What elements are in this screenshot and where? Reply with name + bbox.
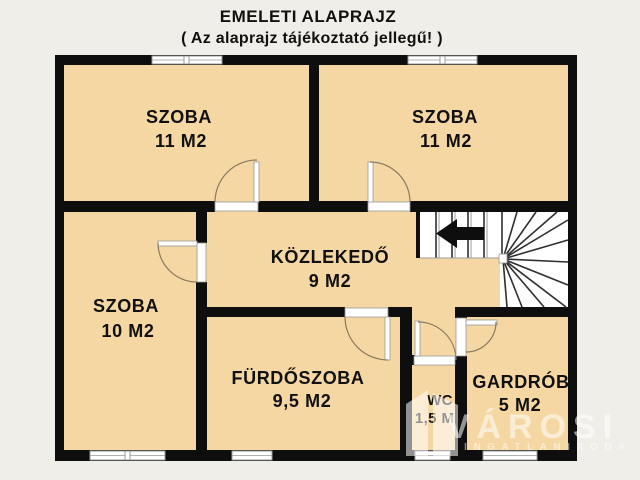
room-name-szoba-bottom-left: SZOBA bbox=[93, 296, 159, 316]
room-name-furdoszoba: FÜRDŐSZOBA bbox=[232, 367, 365, 388]
plan-title-main: EMELETI ALAPRAJZ bbox=[220, 7, 396, 26]
watermark-brand: VÁROSI bbox=[447, 408, 619, 446]
watermark-tagline: INGATLANIRODA bbox=[464, 442, 632, 453]
room-name-szoba-top-right: SZOBA bbox=[412, 107, 478, 127]
room-area-kozlekedo: 9 M2 bbox=[309, 271, 351, 291]
room-area-furdoszoba: 9,5 M2 bbox=[273, 391, 332, 411]
room-area-szoba-top-left: 11 M2 bbox=[155, 131, 207, 151]
room-area-szoba-top-right: 11 M2 bbox=[420, 131, 472, 151]
room-area-szoba-bottom-left: 10 M2 bbox=[101, 321, 154, 341]
room-name-kozlekedo: KÖZLEKEDŐ bbox=[271, 246, 389, 267]
window-top-right bbox=[408, 56, 477, 64]
room-name-szoba-top-left: SZOBA bbox=[146, 107, 212, 127]
floor-plan-drawing: EMELETI ALAPRAJZ ( Az alaprajz tájékozta… bbox=[0, 0, 640, 480]
window-top-left bbox=[152, 56, 222, 64]
window-bottom-szoba bbox=[90, 451, 165, 460]
floor-plan: EMELETI ALAPRAJZ ( Az alaprajz tájékozta… bbox=[0, 0, 640, 480]
room-name-gardrob: GARDRÓB bbox=[472, 371, 569, 392]
window-bottom-furdoszoba bbox=[232, 451, 272, 460]
plan-title: EMELETI ALAPRAJZ ( Az alaprajz tájékozta… bbox=[181, 7, 443, 47]
plan-title-note: ( Az alaprajz tájékoztató jellegű! ) bbox=[181, 30, 443, 47]
